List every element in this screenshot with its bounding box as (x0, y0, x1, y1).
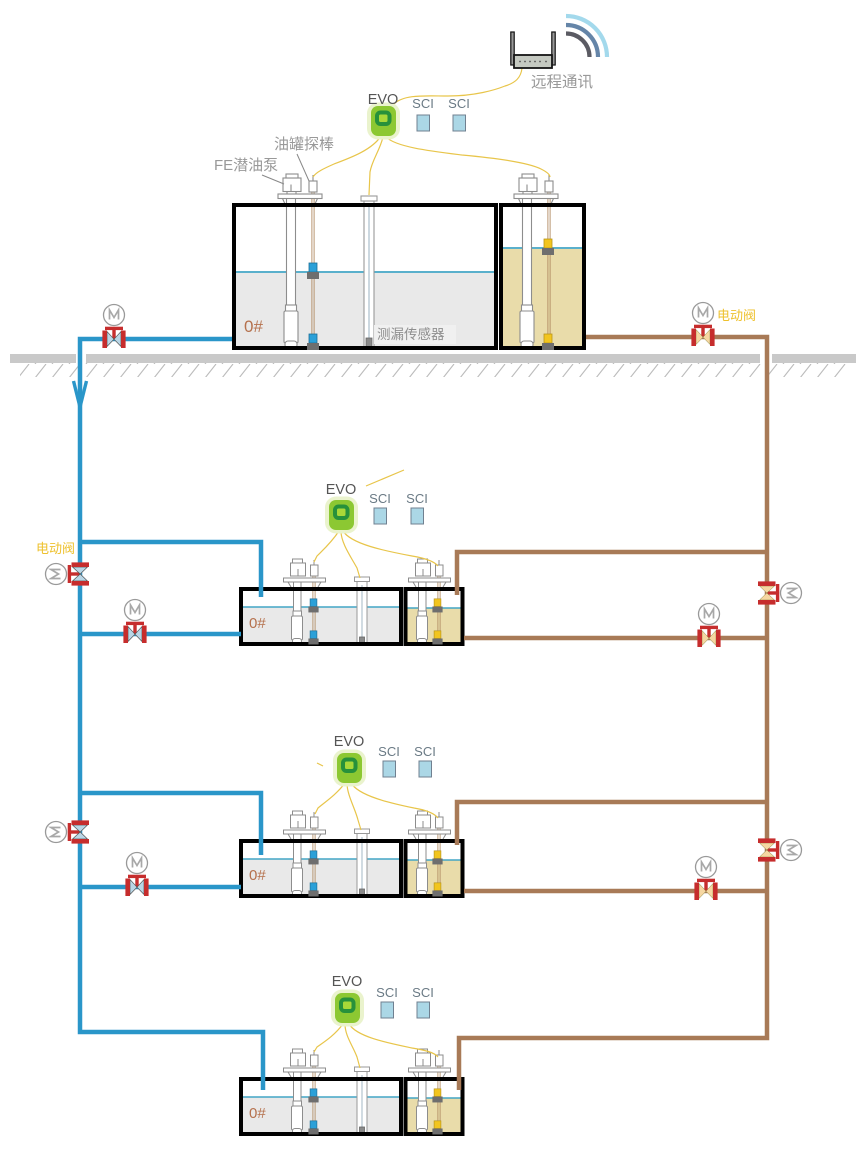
svg-text:EVO: EVO (326, 482, 357, 498)
svg-text:SCI: SCI (376, 985, 398, 1000)
svg-text:电动阀: 电动阀 (36, 541, 75, 556)
svg-text:SCI: SCI (414, 744, 436, 759)
svg-text:EVO: EVO (332, 974, 363, 990)
svg-text:FE潜油泵: FE潜油泵 (214, 157, 278, 174)
svg-text:远程通讯: 远程通讯 (531, 73, 593, 91)
svg-text:测漏传感器: 测漏传感器 (377, 326, 445, 342)
svg-text:油罐探棒: 油罐探棒 (274, 136, 334, 153)
svg-text:EVO: EVO (368, 92, 399, 108)
svg-text:SCI: SCI (412, 985, 434, 1000)
svg-text:电动阀: 电动阀 (717, 308, 756, 323)
svg-text:0#: 0# (244, 317, 263, 336)
svg-text:SCI: SCI (406, 491, 428, 506)
svg-text:EVO: EVO (334, 734, 365, 750)
svg-text:SCI: SCI (412, 96, 434, 111)
svg-text:SCI: SCI (369, 491, 391, 506)
svg-text:SCI: SCI (378, 744, 400, 759)
svg-text:SCI: SCI (448, 96, 470, 111)
